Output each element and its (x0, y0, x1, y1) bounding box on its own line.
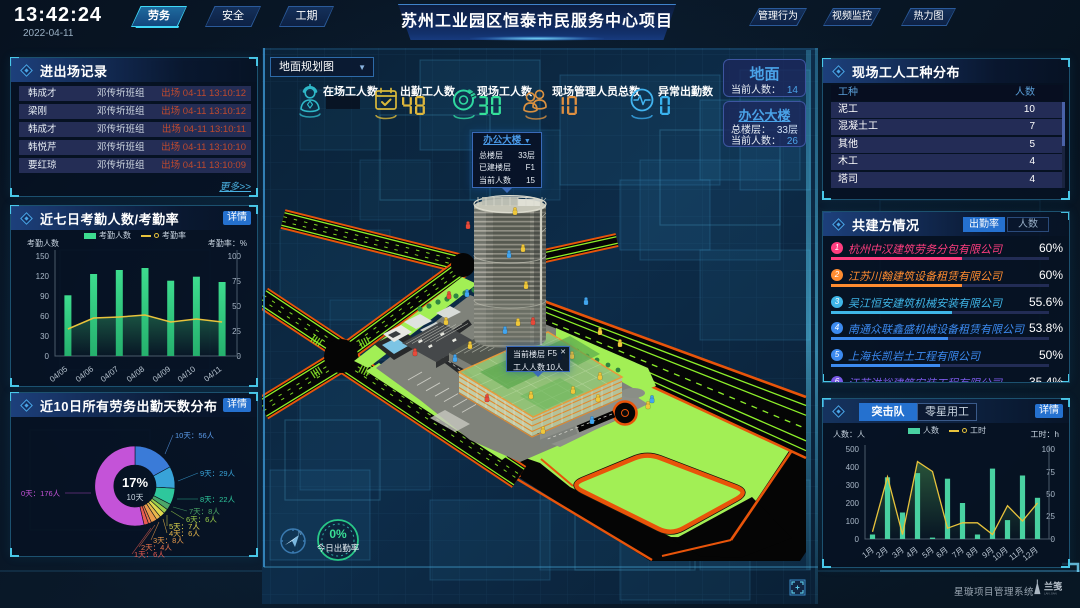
svg-text:8月: 8月 (964, 545, 979, 560)
svg-text:04/08: 04/08 (125, 364, 147, 384)
svg-text:0: 0 (855, 535, 860, 544)
svg-text:75: 75 (1046, 468, 1055, 477)
svg-text:0: 0 (45, 352, 50, 361)
svg-text:0天：176人: 0天：176人 (21, 489, 61, 498)
svg-text:4月: 4月 (904, 545, 919, 560)
svg-text:考勤率：%: 考勤率：% (208, 238, 247, 248)
svg-text:100: 100 (846, 517, 860, 526)
svg-text:9天：29人: 9天：29人 (200, 469, 236, 478)
svg-text:今日出勤率: 今日出勤率 (317, 543, 360, 553)
svg-text:12月: 12月 (1021, 545, 1040, 563)
svg-text:60: 60 (40, 312, 49, 321)
svg-text:LAN JIAN: LAN JIAN (1044, 592, 1057, 596)
svg-text:1天：6人: 1天：6人 (134, 550, 165, 559)
svg-text:兰笺: 兰笺 (1044, 581, 1062, 592)
svg-text:10天: 10天 (127, 493, 144, 502)
svg-text:10月: 10月 (991, 545, 1010, 563)
svg-text:500: 500 (846, 445, 860, 454)
svg-text:2月: 2月 (874, 545, 889, 560)
svg-text:150: 150 (36, 252, 50, 261)
svg-text:6月: 6月 (934, 545, 949, 560)
svg-text:10天：56人: 10天：56人 (175, 431, 215, 440)
svg-text:考勤人数: 考勤人数 (27, 238, 59, 248)
svg-text:400: 400 (846, 463, 860, 472)
svg-text:100: 100 (228, 252, 242, 261)
svg-text:90: 90 (40, 292, 49, 301)
svg-text:30: 30 (40, 332, 49, 341)
svg-text:04/06: 04/06 (74, 364, 96, 384)
svg-text:04/07: 04/07 (99, 364, 121, 384)
svg-text:04/10: 04/10 (176, 364, 198, 384)
svg-text:200: 200 (846, 499, 860, 508)
svg-text:04/05: 04/05 (48, 364, 70, 384)
svg-text:8天：22人: 8天：22人 (200, 495, 236, 504)
svg-text:120: 120 (36, 272, 50, 281)
svg-text:300: 300 (846, 481, 860, 490)
svg-text:0%: 0% (329, 527, 347, 541)
svg-text:50: 50 (1046, 490, 1055, 499)
svg-text:04/11: 04/11 (202, 364, 223, 383)
svg-text:17%: 17% (122, 475, 148, 490)
svg-text:25: 25 (1046, 512, 1055, 521)
svg-text:04/09: 04/09 (151, 364, 173, 384)
